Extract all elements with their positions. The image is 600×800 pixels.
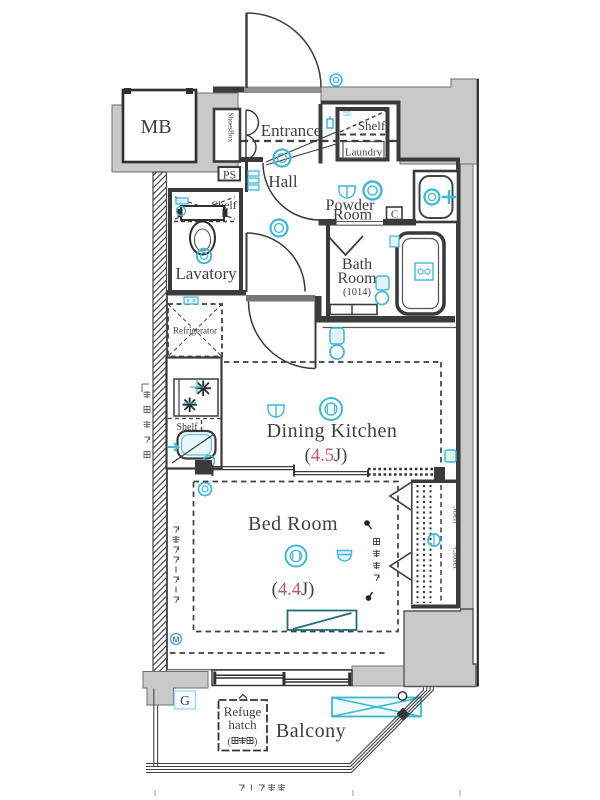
svg-text:Balcony: Balcony bbox=[276, 720, 346, 742]
svg-text:): ) bbox=[254, 737, 257, 748]
svg-text:Shelf: Shelf bbox=[358, 118, 386, 133]
svg-text:hatch: hatch bbox=[228, 717, 257, 732]
svg-text:Entrance: Entrance bbox=[261, 121, 321, 140]
svg-text:(4.4J): (4.4J) bbox=[272, 580, 315, 600]
svg-text:C: C bbox=[391, 209, 398, 221]
svg-text:MB: MB bbox=[140, 116, 171, 138]
svg-text:M: M bbox=[173, 636, 180, 645]
svg-text:Laundry: Laundry bbox=[345, 147, 383, 159]
svg-text:Shelf: Shelf bbox=[452, 506, 462, 524]
svg-text:ShoesBox: ShoesBox bbox=[227, 113, 236, 143]
svg-text:Dining Kitchen: Dining Kitchen bbox=[267, 420, 398, 442]
svg-text:Room: Room bbox=[337, 270, 377, 287]
svg-text:Bed Room: Bed Room bbox=[248, 513, 338, 535]
svg-text:(4.5J): (4.5J) bbox=[305, 446, 348, 466]
svg-text:Closet: Closet bbox=[452, 547, 462, 569]
svg-text:G: G bbox=[180, 693, 190, 708]
svg-text:Refrigerator: Refrigerator bbox=[173, 326, 217, 336]
svg-text:Lavatory: Lavatory bbox=[175, 264, 237, 283]
svg-text:Hall: Hall bbox=[268, 172, 298, 191]
svg-text:(1014): (1014) bbox=[343, 287, 371, 298]
svg-text:PS: PS bbox=[223, 168, 236, 182]
